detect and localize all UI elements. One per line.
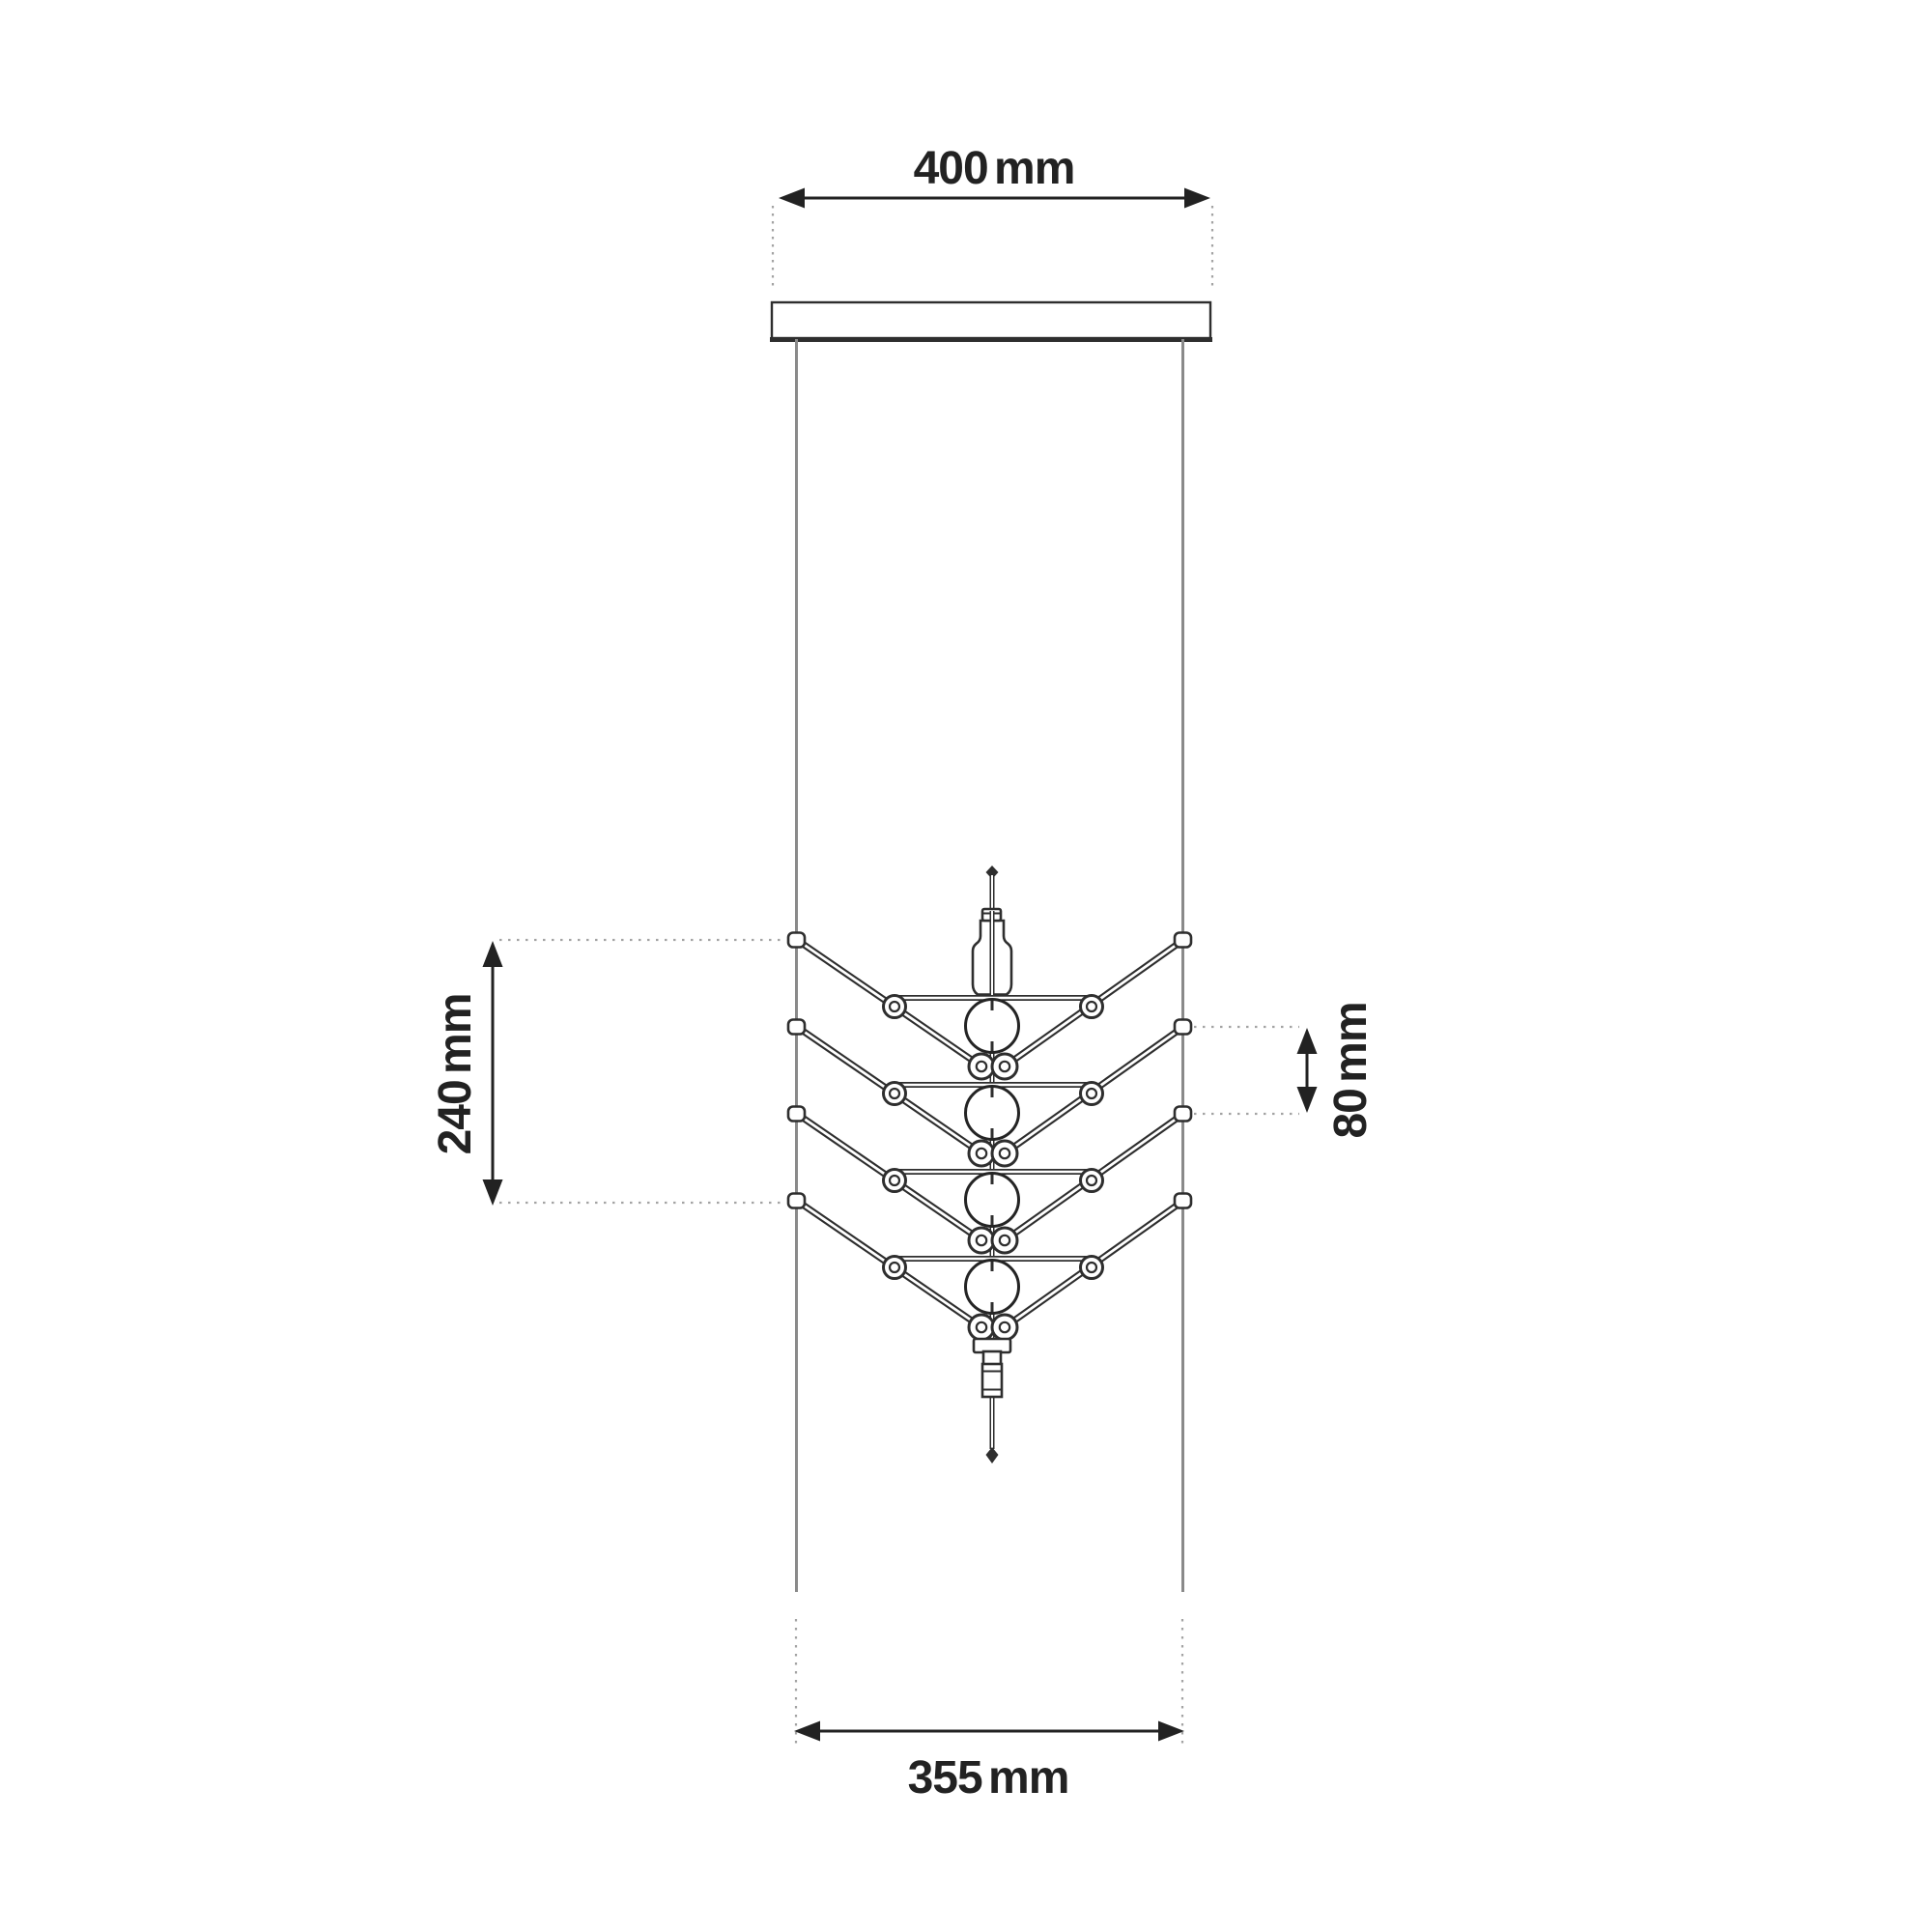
arrowhead-up-icon <box>483 941 503 967</box>
dimension-top-width: 400 mm <box>773 143 1212 291</box>
dimension-bottom-width: 355 mm <box>794 1619 1184 1804</box>
dimension-label-bottom: 355 mm <box>908 1752 1069 1804</box>
stem-bottom-finial <box>986 1447 999 1463</box>
arrowhead-right-icon <box>1158 1721 1184 1742</box>
counterweight-cylinder <box>982 1364 1002 1397</box>
canopy-body <box>772 302 1210 338</box>
arrowhead-right-icon <box>1184 188 1210 209</box>
arrowhead-left-icon <box>779 188 805 209</box>
arrowhead-down-icon <box>1297 1087 1318 1113</box>
dimension-label-right: 80 mm <box>1325 1002 1377 1138</box>
pendant-lamp-dimension-drawing: 400 mm 240 mm 80 mm 355 mm <box>0 0 1932 1932</box>
arrowhead-left-icon <box>794 1721 820 1742</box>
drawing-canvas: 400 mm 240 mm 80 mm 355 mm <box>0 0 1932 1932</box>
arrowhead-up-icon <box>1297 1028 1318 1054</box>
dimension-label-top: 400 mm <box>914 143 1075 194</box>
dimension-label-left: 240 mm <box>430 994 481 1155</box>
socket-housing <box>973 909 1011 996</box>
dimension-left-span: 240 mm <box>430 940 784 1206</box>
ceiling-canopy <box>770 302 1212 340</box>
dimension-right-spacing: 80 mm <box>1194 1002 1377 1138</box>
